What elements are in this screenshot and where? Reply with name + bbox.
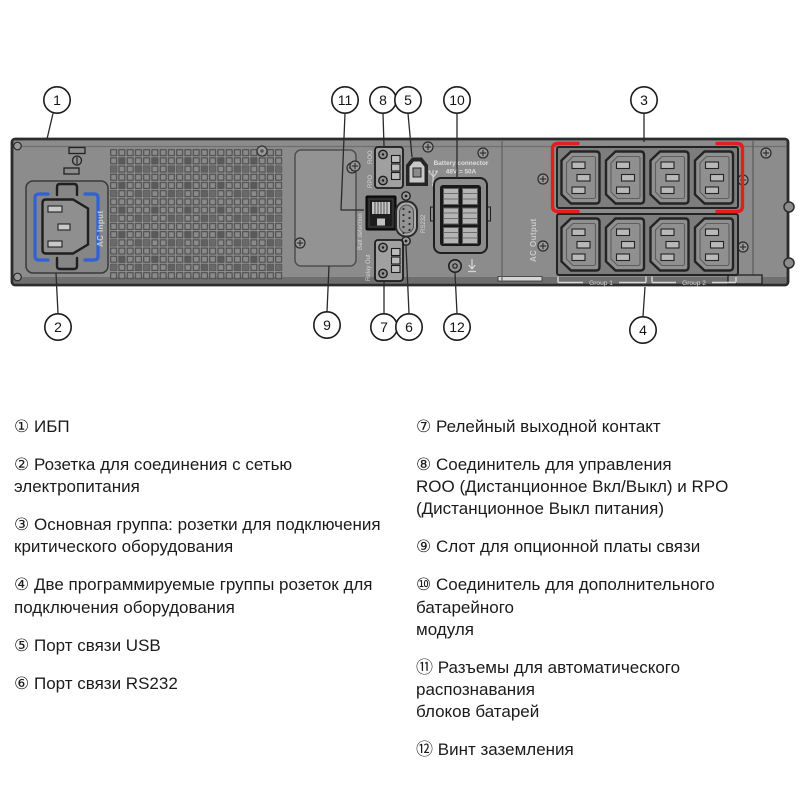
screw-icon xyxy=(350,161,360,171)
vent-grid xyxy=(110,146,283,280)
legend-item-text: Розетка для соединения с сетью электропи… xyxy=(14,455,292,496)
edge-notch xyxy=(784,202,794,212)
legend-item-5: ⑤ Порт связи USB xyxy=(14,635,406,657)
legend-item-number: ② xyxy=(14,455,29,475)
svg-text:6: 6 xyxy=(405,319,413,335)
svg-text:10: 10 xyxy=(449,92,465,108)
ac-outlet xyxy=(651,219,689,271)
svg-text:12: 12 xyxy=(449,319,465,335)
ups-rear-panel-diagram: AC Input ROO RPO xyxy=(0,0,800,370)
rs232-label: RS232 xyxy=(421,214,427,233)
callout-4: 4 xyxy=(630,287,656,343)
screw-icon xyxy=(538,241,548,251)
screw-icon xyxy=(14,142,22,150)
ac-outlet xyxy=(606,152,644,204)
legend-item-6: ⑥ Порт связи RS232 xyxy=(14,673,406,695)
ac-outlet xyxy=(651,152,689,204)
svg-text:3: 3 xyxy=(640,92,648,108)
group-2-label: Group 2 xyxy=(682,280,706,287)
legend-item-9: ⑨ Слот для опционной платы связи xyxy=(416,536,796,558)
group-1-label: Group 1 xyxy=(589,280,613,287)
ac-outlet xyxy=(562,219,600,271)
ac-output-section: AC Output Group 1 Group 2 xyxy=(529,144,748,288)
battery-rating-label: 48V = 50A xyxy=(446,169,477,176)
legend-item-text: Слот для опционной платы связи xyxy=(436,537,700,556)
svg-text:5: 5 xyxy=(404,92,412,108)
battery-connector-label: Battery connector xyxy=(434,160,489,167)
legend-item-12: ⑫ Винт заземления xyxy=(416,739,796,761)
legend-item-text: Порт связи USB xyxy=(34,636,161,655)
screw-icon xyxy=(761,148,771,158)
legend-item-text: Основная группа: розетки для подключения… xyxy=(14,515,381,556)
rpo-label: RPO xyxy=(368,175,374,188)
legend-item-4: ④ Две программируемые группы розеток для… xyxy=(14,574,406,618)
legend-item-number: ⑪ xyxy=(416,658,433,678)
ac-outlet xyxy=(695,152,733,204)
relay-out-label: Relay Out xyxy=(366,254,372,281)
svg-text:11: 11 xyxy=(338,92,353,108)
batt-detection-label: Batt detection xyxy=(358,213,364,250)
legend-item-text: Разъемы для автоматического распознавани… xyxy=(416,658,680,721)
ac-outlet xyxy=(562,152,600,204)
option-card-slot xyxy=(295,150,357,266)
svg-text:4: 4 xyxy=(639,322,647,338)
legend-item-number: ⑧ xyxy=(416,455,431,475)
svg-text:1: 1 xyxy=(53,92,61,108)
legend-item-number: ⑤ xyxy=(14,636,29,656)
legend-item-text: Релейный выходной контакт xyxy=(436,417,661,436)
screw-icon xyxy=(295,238,305,248)
legend-item-text: Соединитель для дополнительного батарейн… xyxy=(416,575,715,638)
svg-text:9: 9 xyxy=(323,317,331,333)
callout-3: 3 xyxy=(631,87,657,142)
legend-item-text: Винт заземления xyxy=(438,740,574,759)
callout-7: 7 xyxy=(371,281,397,340)
legend-column-right: ⑦ Релейный выходной контакт ⑧ Соединител… xyxy=(416,416,796,777)
callout-1: 1 xyxy=(44,87,70,139)
ac-output-label: AC Output xyxy=(529,218,538,262)
legend-column-left: ① ИБП ② Розетка для соединения с сетью э… xyxy=(14,416,406,777)
roo-label: ROO xyxy=(368,150,374,164)
legend-item-8: ⑧ Соединитель для управления ROO (Дистан… xyxy=(416,454,796,520)
screw-icon xyxy=(538,174,548,184)
legend-item-text: Порт связи RS232 xyxy=(34,674,178,693)
screw-icon xyxy=(423,142,433,152)
svg-text:2: 2 xyxy=(54,319,62,335)
legend-item-number: ③ xyxy=(14,515,29,535)
legend-item-text: ИБП xyxy=(34,417,70,436)
legend-item-number: ⑥ xyxy=(14,674,29,694)
legend-item-text: Две программируемые группы розеток для п… xyxy=(14,575,373,616)
legend-item-number: ① xyxy=(14,417,29,437)
ac-outlet xyxy=(695,219,733,271)
svg-text:7: 7 xyxy=(380,319,388,335)
legend-item-text: Соединитель для управления ROO (Дистанци… xyxy=(416,455,728,518)
screw-icon xyxy=(14,273,22,281)
legend-item-7: ⑦ Релейный выходной контакт xyxy=(416,416,796,438)
rail-highlight xyxy=(498,277,542,282)
legend-item-2: ② Розетка для соединения с сетью электро… xyxy=(14,454,406,498)
legend-item-3: ③ Основная группа: розетки для подключен… xyxy=(14,514,406,558)
callout-8: 8 xyxy=(370,87,396,146)
screw-icon xyxy=(478,148,488,158)
legend: ① ИБП ② Розетка для соединения с сетью э… xyxy=(14,416,796,777)
legend-item-number: ⑦ xyxy=(416,417,431,437)
legend-item-11: ⑪ Разъемы для автоматического распознава… xyxy=(416,657,796,723)
legend-item-1: ① ИБП xyxy=(14,416,406,438)
legend-item-10: ⑩ Соединитель для дополнительного батаре… xyxy=(416,574,796,640)
svg-text:8: 8 xyxy=(379,92,387,108)
legend-item-number: ⑩ xyxy=(416,575,431,595)
ac-outlet xyxy=(606,219,644,271)
legend-item-number: ⑫ xyxy=(416,740,433,760)
legend-item-number: ④ xyxy=(14,575,29,595)
edge-notch xyxy=(784,258,794,268)
ac-input-label: AC Input xyxy=(96,210,105,247)
screw-icon xyxy=(738,242,748,252)
legend-item-number: ⑨ xyxy=(416,537,431,557)
